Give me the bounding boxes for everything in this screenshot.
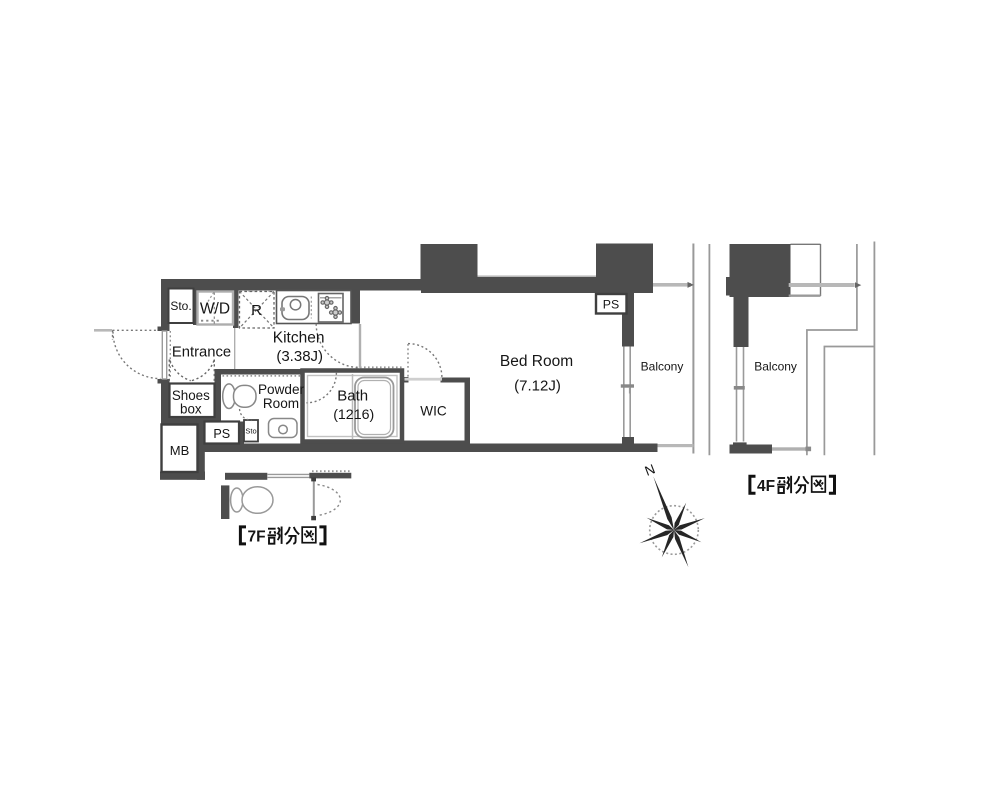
svg-text:MB: MB — [170, 443, 190, 458]
svg-text:7F: 7F — [247, 529, 265, 546]
svg-text:(7.12J): (7.12J) — [514, 377, 561, 394]
svg-text:Sto: Sto — [245, 427, 256, 436]
svg-text:4F: 4F — [757, 478, 775, 495]
svg-text:box: box — [180, 402, 202, 417]
svg-text:Entrance: Entrance — [172, 344, 231, 360]
svg-text:Sto.: Sto. — [170, 299, 191, 313]
svg-text:R: R — [251, 302, 262, 319]
svg-text:Balcony: Balcony — [754, 360, 797, 374]
svg-text:Powder: Powder — [258, 382, 305, 397]
svg-text:WIC: WIC — [420, 404, 447, 419]
svg-text:Balcony: Balcony — [641, 360, 684, 374]
svg-text:(1216): (1216) — [333, 407, 374, 423]
svg-text:Bath: Bath — [337, 387, 368, 404]
svg-text:W/D: W/D — [200, 301, 230, 318]
svg-text:Room: Room — [263, 396, 299, 411]
svg-text:(3.38J): (3.38J) — [276, 348, 323, 365]
svg-text:PS: PS — [213, 427, 230, 441]
svg-text:Kitchen: Kitchen — [273, 330, 325, 347]
svg-text:Bed Room: Bed Room — [500, 353, 573, 370]
svg-text:PS: PS — [603, 298, 619, 312]
